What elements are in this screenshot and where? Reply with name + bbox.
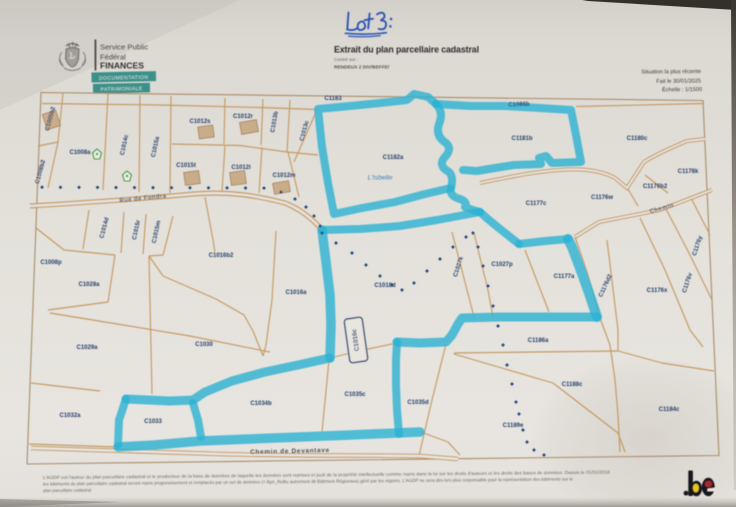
- svg-text:C1015t: C1015t: [176, 163, 196, 169]
- svg-text:FINANCES: FINANCES: [100, 61, 144, 71]
- svg-text:C1012l: C1012l: [231, 165, 251, 171]
- svg-text:Fait le 30/01/2025: Fait le 30/01/2025: [656, 78, 701, 84]
- svg-text:C1012m: C1012m: [272, 173, 295, 179]
- svg-text:C1177a: C1177a: [554, 274, 575, 280]
- svg-text:C1176x: C1176x: [647, 288, 668, 294]
- svg-text:C1018d: C1018d: [374, 283, 396, 289]
- svg-text:Centré sur :: Centré sur :: [334, 57, 358, 62]
- svg-text:C1030: C1030: [195, 342, 213, 348]
- svg-text:DOCUMENTATION: DOCUMENTATION: [99, 75, 149, 82]
- svg-text:Échelle : 1/1500: Échelle : 1/1500: [662, 86, 702, 93]
- svg-text:plan parcellaire cadastral: plan parcellaire cadastral: [43, 488, 91, 493]
- svg-text:C1032a: C1032a: [59, 413, 81, 419]
- svg-text:C1029a: C1029a: [76, 345, 98, 351]
- svg-text:C1028a: C1028a: [78, 282, 100, 288]
- svg-text:L'Isbelle: L'Isbelle: [368, 175, 393, 182]
- svg-text:C1186a: C1186a: [528, 338, 549, 344]
- svg-text:C1188c: C1188c: [562, 382, 583, 388]
- svg-text:C1189e: C1189e: [503, 423, 524, 429]
- svg-text:Service Public: Service Public: [100, 43, 148, 52]
- svg-text:C1035d: C1035d: [407, 400, 429, 406]
- svg-text:C1012r: C1012r: [233, 114, 254, 120]
- svg-text:C1008p: C1008p: [40, 260, 62, 266]
- svg-text:C1033: C1033: [144, 419, 162, 425]
- svg-text:C1035c: C1035c: [344, 392, 366, 398]
- svg-text:C1176w: C1176w: [591, 195, 613, 201]
- svg-text:C1012s: C1012s: [189, 119, 211, 125]
- svg-text:C1027p: C1027p: [491, 262, 513, 268]
- svg-text:Situation la plus récente: Situation la plus récente: [641, 69, 701, 76]
- svg-text:C1177c: C1177c: [526, 201, 547, 207]
- svg-text:C1008a: C1008a: [69, 150, 91, 156]
- svg-text:Extrait du plan parcellaire ca: Extrait du plan parcellaire cadastral: [334, 45, 479, 55]
- svg-text:PATRIMONIALE: PATRIMONIALE: [100, 86, 142, 93]
- svg-text:C1034b: C1034b: [250, 401, 272, 407]
- svg-text:C1184c: C1184c: [659, 407, 680, 413]
- svg-text:C1182a: C1182a: [383, 155, 404, 161]
- svg-text:C1180c: C1180c: [627, 136, 648, 142]
- svg-text:C1183: C1183: [324, 96, 342, 102]
- svg-text:C1176b2: C1176b2: [643, 184, 668, 190]
- svg-text:C1181b: C1181b: [511, 136, 532, 142]
- svg-text:C1178k: C1178k: [678, 169, 699, 175]
- svg-text:C1086b: C1086b: [508, 102, 530, 109]
- svg-text:RENDEUX 2 DIV/BEFFE/: RENDEUX 2 DIV/BEFFE/: [334, 65, 390, 71]
- svg-text:C1016a: C1016a: [285, 290, 307, 296]
- svg-text:C1016b2: C1016b2: [209, 253, 234, 259]
